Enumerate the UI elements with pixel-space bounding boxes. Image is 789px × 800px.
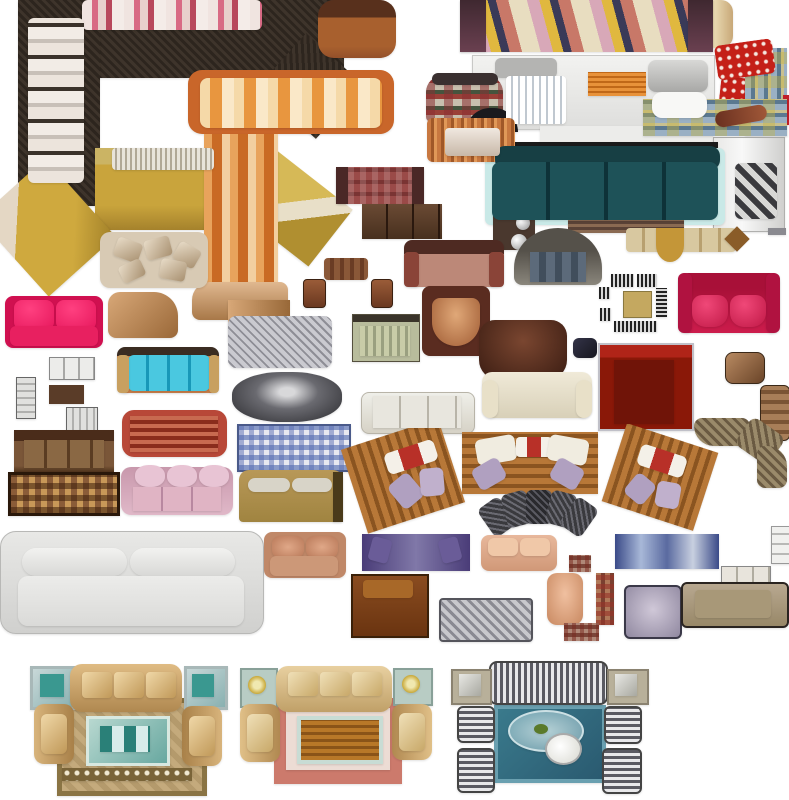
small-chair-vertical: [16, 377, 36, 419]
pinstripe-sofa: [489, 661, 608, 705]
oriental-rug-scallop-border: [62, 768, 192, 781]
tan-end-table-left-glass: [459, 674, 481, 696]
pink-sofa-cushion-2: [167, 465, 197, 487]
pink-sofa-seat: [133, 487, 221, 511]
crimson-loveseat-arm-right: [766, 273, 780, 333]
brown-tv-console: [362, 204, 442, 239]
pinstripe-armchair-2: [457, 748, 495, 793]
peach-cushion-2: [520, 538, 550, 556]
pinstripe-armchair-4: [602, 748, 642, 794]
ivory-sofa-arm-left: [482, 380, 498, 418]
striped-stool-bench: [614, 321, 657, 332]
floral-sofa-arm-right: [688, 0, 713, 52]
salmon-cushion-1: [272, 536, 304, 558]
bronze-ottoman: [725, 352, 765, 384]
plaid-mini-bench: [564, 623, 599, 641]
teal-end-table-right-glass: [192, 674, 214, 697]
crimson-cushion-1: [692, 295, 728, 327]
checkered-bench: [8, 472, 120, 516]
tan-end-table-right-glass: [615, 674, 637, 696]
ivory-sofa-arm-right: [576, 380, 592, 418]
pink-sofa-cushion-1: [135, 465, 165, 487]
white-big-sofa-seat: [18, 576, 244, 626]
bronze-armchair: [108, 292, 178, 338]
khaki-sofa-cushion-1: [248, 478, 290, 492]
stool-table: [623, 291, 652, 318]
teal-glass-coffee-table-top: [100, 726, 150, 752]
copper-armchair-sling: [432, 298, 480, 346]
striped-stool-5: [656, 288, 667, 317]
rattan-curve-segment-3: [757, 446, 787, 488]
wood-bench-left-cushion-2: [419, 467, 445, 497]
gold-bed-pillows: [112, 148, 214, 170]
cream-armchair-left-cushion: [247, 714, 273, 752]
mauve-sofa-arm-right: [489, 252, 504, 287]
wood-bench-right-cushion-2: [654, 480, 682, 510]
salmon-seat: [270, 556, 338, 576]
white-sectional-gray-pillow: [495, 58, 557, 78]
round-white-tray: [545, 733, 582, 765]
cream-sofa-cushion-1: [288, 672, 318, 696]
cream-sofa-cushion-2: [320, 672, 350, 696]
plant-centerpiece: [534, 724, 548, 734]
pink-sofa-cushion-3: [199, 465, 229, 487]
copper-wicker-chair-seat: [445, 128, 500, 156]
plaid-mini-ottoman: [569, 555, 591, 572]
taupe-long-sofa-seat: [695, 590, 771, 618]
gold-sofa-cushion-3: [146, 672, 176, 698]
scatter-pillow-5: [158, 258, 187, 282]
floral-cushion-strip-top: [82, 0, 262, 30]
chaise-chrome-bar: [768, 228, 786, 235]
blue-tiedye-sofa: [615, 534, 719, 569]
cream-pleat-sofa-sections: [373, 396, 461, 428]
white-sectional-pinstripe-cushion: [506, 76, 566, 124]
maroon-check-loveseat: [336, 167, 424, 204]
wood-frame-chair-back: [363, 580, 413, 598]
white-mini-shelf: [771, 526, 789, 564]
pinstripe-armchair-3: [604, 706, 642, 744]
chocolate-armchair: [479, 320, 567, 380]
khaki-sofa-cushion-2: [292, 478, 332, 492]
teal-sectional-seats: [492, 162, 718, 220]
teal-end-table-left-glass: [40, 674, 64, 697]
brown-mini-chair-1: [303, 279, 326, 308]
sage-armchair-stripes: [360, 326, 410, 356]
wood-coffee-table-mint: [297, 716, 383, 764]
floral-tapestry-sofa: [460, 0, 713, 52]
peach-armchair: [547, 573, 583, 625]
sienna-armchair: [318, 0, 396, 58]
tartan-loveseat-back-roll: [432, 73, 498, 85]
striped-stool-2: [637, 274, 657, 287]
red-chrome-chair-seat: [614, 360, 674, 424]
white-sectional-gray-pillow-2: [648, 60, 708, 92]
hot-pink-seat: [10, 326, 98, 346]
navy-mini-ottoman: [573, 338, 597, 358]
red-striped-sofa-body: [130, 416, 218, 452]
pinstripe-armchair-1: [457, 706, 495, 743]
small-chair-2: [66, 407, 98, 431]
quilted-oval-pouf: [232, 372, 342, 422]
turquoise-sofa-arm-left: [117, 355, 129, 393]
orange-l-sofa-vertical: [204, 134, 278, 284]
dome-armchair-plaid-seat: [530, 252, 586, 282]
small-coffee-table: [49, 385, 84, 404]
gold-armchair-right-cushion: [189, 716, 215, 756]
lavender-square-chair: [624, 585, 682, 639]
dark-wood-sofa-cushions: [24, 440, 104, 468]
white-big-sofa-back-cushion-2: [130, 548, 235, 576]
mauve-sofa-arm-left: [404, 252, 419, 287]
striped-stool-4: [600, 308, 611, 321]
floral-sofa-arm-left: [460, 0, 486, 52]
gingham-daybed: [237, 424, 351, 472]
crimson-cushion-2: [730, 295, 766, 327]
gold-arrow-bench-blob: [656, 228, 684, 262]
lamp-end-table-left-lamp: [248, 676, 266, 694]
orange-l-sofa-cushions: [200, 78, 382, 128]
crimson-loveseat-arm-left: [678, 273, 692, 333]
lamp-end-table-right-lamp: [402, 675, 420, 693]
turquoise-sofa-cushions: [128, 355, 210, 391]
khaki-sofa-shadow-edge: [333, 472, 343, 522]
floral-cushion-strip-left: [28, 18, 84, 183]
maroon-loveseat-arm-left: [336, 167, 348, 204]
brown-mini-bench: [324, 258, 368, 280]
gold-sofa-cushion-1: [82, 672, 112, 698]
cream-armchair-right-cushion: [399, 713, 425, 751]
brown-mini-chair-2: [371, 279, 393, 308]
chaise-chevron-cushion: [735, 163, 777, 219]
white-sectional-white-pillow: [652, 92, 707, 118]
collage-canvas: [0, 0, 789, 800]
white-big-sofa-back-cushion-1: [22, 548, 127, 576]
turquoise-sofa-arm-right: [209, 355, 219, 393]
gold-sofa-cushion-2: [114, 672, 144, 698]
cream-sofa-cushion-3: [352, 672, 382, 696]
striped-stool-3: [599, 287, 610, 299]
peach-cushion-1: [488, 538, 518, 556]
red-plaid-tall-chair: [596, 573, 614, 625]
maroon-loveseat-arm-right: [412, 167, 424, 204]
small-white-sofa: [49, 357, 95, 380]
white-sectional-orange-accent: [588, 72, 646, 96]
gray-damask-sofa: [228, 316, 332, 368]
salmon-cushion-2: [306, 536, 338, 558]
gray-woven-bench: [439, 598, 533, 642]
striped-stool-1: [611, 274, 634, 287]
gold-armchair-left-cushion: [41, 714, 67, 754]
